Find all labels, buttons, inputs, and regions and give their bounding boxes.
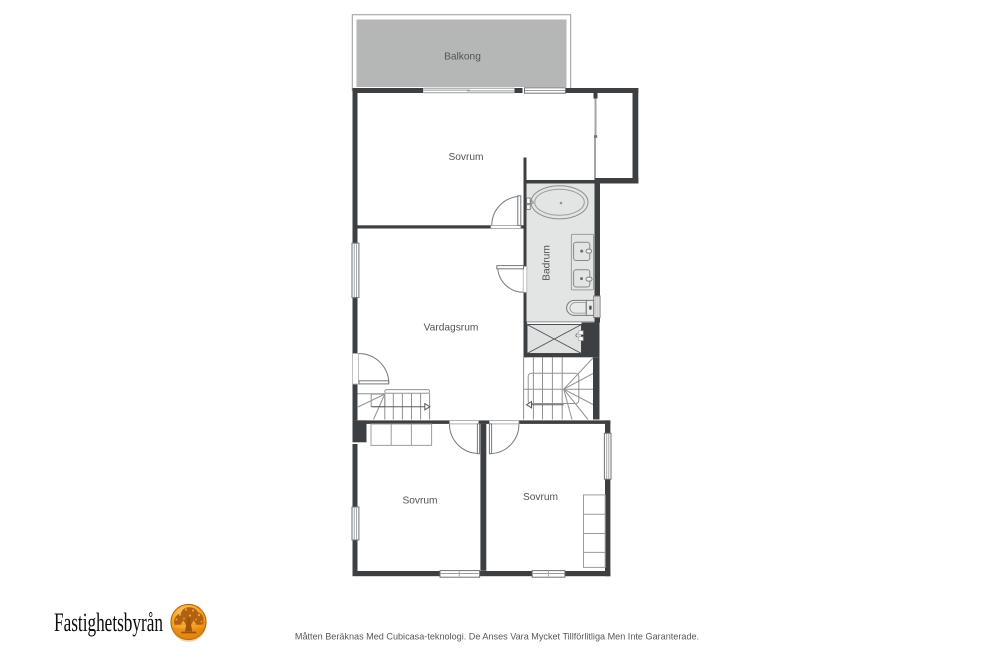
svg-text:Sovrum: Sovrum (448, 152, 483, 163)
svg-text:Vardagsrum: Vardagsrum (424, 323, 479, 334)
svg-text:Sovrum: Sovrum (402, 496, 437, 507)
svg-text:Badrum: Badrum (542, 245, 553, 281)
svg-text:Måtten Beräknas Med Cubicasa-t: Måtten Beräknas Med Cubicasa-teknologi. … (295, 632, 699, 642)
svg-text:Sovrum: Sovrum (523, 492, 558, 503)
svg-text:Balkong: Balkong (444, 52, 481, 63)
svg-text:Fastighetsbyrån: Fastighetsbyrån (54, 608, 163, 637)
